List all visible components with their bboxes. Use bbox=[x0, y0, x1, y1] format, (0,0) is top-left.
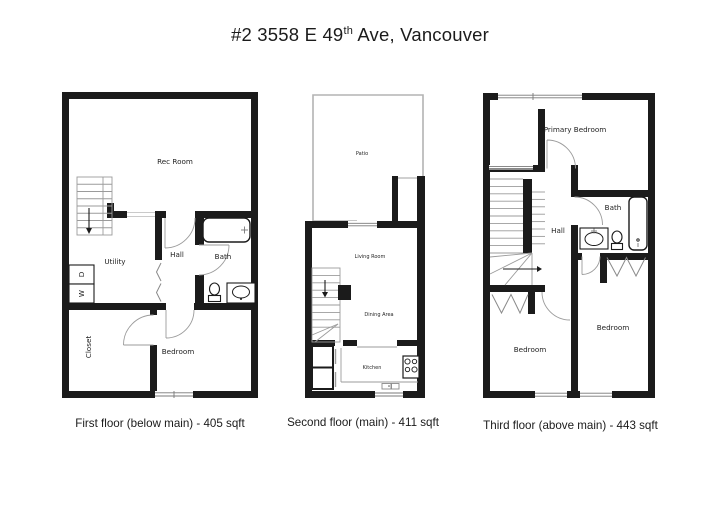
room-label-bedroom-left: Bedroom bbox=[514, 345, 547, 354]
third-floor-svg: Primary Bedroom Hall Bath Bedroom Bedroo… bbox=[483, 93, 655, 398]
first-floor-plan: D W Rec Room Utility Hall Bath Bedroom C… bbox=[62, 92, 258, 398]
room-label-patio: Patio bbox=[356, 151, 368, 157]
room-label-hall: Hall bbox=[551, 226, 565, 235]
address-suffix: Ave, Vancouver bbox=[353, 24, 489, 45]
left-bedroom-door-arc bbox=[542, 292, 570, 320]
washer-label: W bbox=[77, 290, 86, 297]
second-floor-plan: Patio Living Room Dining Area Kitchen bbox=[305, 92, 425, 398]
patio-walls bbox=[313, 95, 423, 222]
room-label-bedroom: Bedroom bbox=[162, 347, 195, 356]
bathtub-icon bbox=[203, 218, 250, 242]
stairs-icon bbox=[312, 268, 351, 342]
right-bedroom-door-arc bbox=[582, 257, 600, 275]
closet-door-arc bbox=[124, 315, 154, 345]
bedroom-window bbox=[155, 391, 193, 398]
stairs-down-arrow-icon bbox=[86, 228, 92, 234]
room-label-bath: Bath bbox=[215, 252, 232, 261]
washer-box: W bbox=[69, 284, 94, 303]
patio-slider-door bbox=[348, 221, 377, 228]
sink-icon bbox=[580, 228, 608, 249]
room-label-hall: Hall bbox=[170, 250, 184, 259]
hall-door-arc bbox=[165, 218, 195, 248]
kitchen-sink-icon bbox=[382, 384, 399, 390]
bathtub-icon bbox=[629, 197, 647, 250]
dryer-box: D bbox=[69, 265, 94, 284]
primary-bedroom-door-arc bbox=[547, 140, 576, 169]
address-prefix: #2 3558 E 49 bbox=[231, 24, 343, 45]
bedroom-door-arc bbox=[166, 310, 194, 338]
kitchen-window bbox=[375, 391, 403, 398]
stairs-arrow-icon bbox=[322, 292, 328, 298]
storage-closets bbox=[312, 346, 336, 389]
room-label-utility: Utility bbox=[104, 257, 126, 266]
utility-opening bbox=[127, 213, 155, 217]
address-superscript: th bbox=[343, 25, 353, 37]
room-label-bath: Bath bbox=[605, 203, 622, 212]
room-label-bedroom-right: Bedroom bbox=[597, 323, 630, 332]
dryer-label: D bbox=[77, 271, 86, 277]
second-floor-svg: Patio Living Room Dining Area Kitchen bbox=[305, 92, 425, 398]
room-label-closet: Closet bbox=[84, 336, 93, 359]
primary-bedroom-window bbox=[498, 93, 582, 100]
room-label-living-room: Living Room bbox=[355, 254, 386, 260]
stove-icon bbox=[403, 356, 419, 378]
closet-rod-icon bbox=[607, 258, 646, 277]
floorplan-page: #2 3558 E 49th Ave, Vancouver bbox=[0, 0, 720, 509]
floor3-caption: Third floor (above main) - 443 sqft bbox=[458, 419, 683, 432]
room-label-kitchen: Kitchen bbox=[363, 365, 382, 371]
first-floor-svg: D W Rec Room Utility Hall Bath Bedroom C… bbox=[62, 92, 258, 398]
stairs-right-arrow-icon bbox=[537, 266, 542, 272]
utility-door-icon bbox=[157, 263, 162, 302]
sink-icon bbox=[227, 283, 255, 303]
room-label-primary-bedroom: Primary Bedroom bbox=[544, 125, 607, 134]
closet-slider-door bbox=[489, 165, 533, 170]
room-label-dining-area: Dining Area bbox=[364, 312, 393, 318]
toilet-icon bbox=[612, 231, 623, 250]
third-floor-plan: Primary Bedroom Hall Bath Bedroom Bedroo… bbox=[483, 93, 655, 398]
stairs-icon bbox=[490, 179, 545, 285]
page-title: #2 3558 E 49th Ave, Vancouver bbox=[0, 24, 720, 46]
floor2-caption: Second floor (main) - 411 sqft bbox=[263, 416, 463, 429]
closet-rod-icon bbox=[492, 295, 528, 314]
stairs-icon bbox=[77, 177, 112, 235]
toilet-icon bbox=[209, 283, 221, 302]
bath-door-arc bbox=[575, 197, 603, 225]
room-label-rec-room: Rec Room bbox=[157, 157, 193, 166]
floor1-caption: First floor (below main) - 405 sqft bbox=[40, 417, 280, 430]
